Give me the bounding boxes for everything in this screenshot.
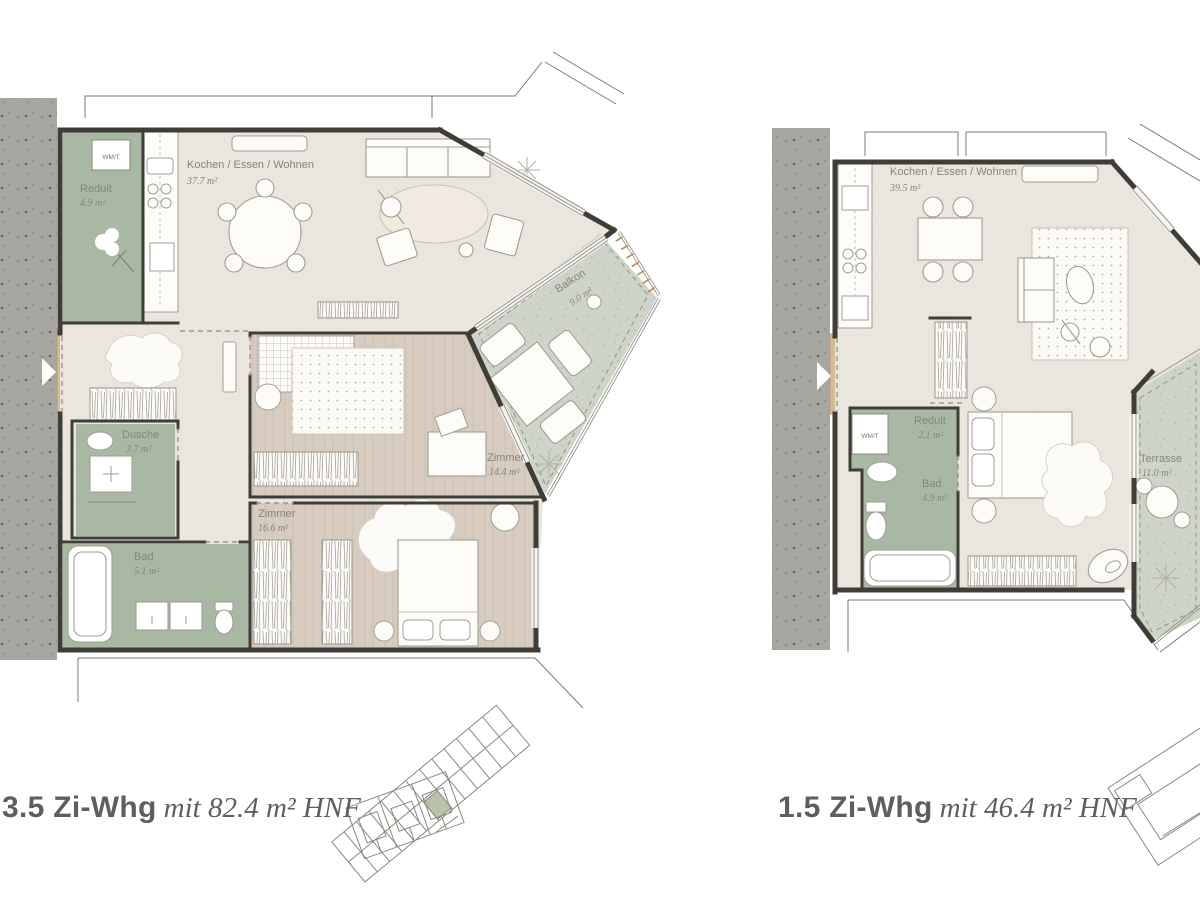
toilet [866,512,886,540]
kitchen-oven [150,243,174,271]
neighbour-outline-bottom [78,658,583,708]
wardrobe [322,540,352,644]
entry-wardrobe [90,388,176,422]
key-plan-connector [436,816,458,832]
stool [972,499,996,523]
left-plan-title-italic: mit 82.4 m² HNF [164,792,361,824]
room-area-zimmer2: 16.6 m² [258,523,289,534]
toilet-tank [866,502,886,512]
entry-wardrobe [935,322,967,398]
desk [428,432,486,476]
pillow [403,620,433,640]
floorplan-canvas: Reduit 4.9 m² WM/T Kochen / Essen / Wohn… [0,0,1200,900]
floor-lamp [381,197,401,217]
room-area-terrasse: 11.0 m² [1142,468,1172,479]
room-label-terrasse: Terrasse [1140,453,1182,465]
terrace-chair [1174,512,1190,528]
kitchen-counter [838,164,872,328]
room-label-kochen: Kochen / Essen / Wohnen [890,166,1017,178]
left-plan-title: 3.5 Zi-Whgmit 82.4 m² HNF [2,791,361,825]
toilet [215,610,233,634]
right-plan-title-bold: 1.5 Zi-Whg [778,791,933,824]
room-area-reduit: 4.9 m² [80,198,106,209]
washbasin [867,462,897,482]
pillow [440,620,470,640]
room-area-bad: 4.9 m² [922,493,948,504]
wmt-label: WM/T [102,154,119,161]
sideboard-shelf [232,136,307,151]
bathtub [68,546,112,642]
key-plan-main-wing [332,705,530,882]
terrace-plant [1152,564,1180,592]
right-plan-title: 1.5 Zi-Whgmit 46.4 m² HNF [778,791,1137,825]
balcony-plant [535,450,563,478]
room-label-dusche: Dusche [122,429,159,441]
pillow [972,418,994,450]
console [223,342,236,392]
room-area-bad: 5.1 m² [134,566,160,577]
room-area-kochen: 37.7 m² [186,176,218,187]
wardrobe [254,452,358,486]
room-label-reduit: Reduit [80,183,112,195]
pillow [972,454,994,486]
room-area-kochen: 39.5 m² [889,183,921,194]
dotted-rug [292,348,404,434]
left-plan-title-bold: 3.5 Zi-Whg [2,791,157,824]
right-plan-title-italic: mit 46.4 m² HNF [940,792,1137,824]
room-area-dusche: 3.7 m² [125,444,152,455]
floorplan-sheet: Reduit 4.9 m² WM/T Kochen / Essen / Wohn… [0,0,1200,900]
pouf [1090,337,1110,357]
washbasin [87,432,113,450]
room-area-zimmer1: 14.4 m² [489,467,520,478]
kitchen-sink [842,186,868,210]
sideboard-hatched [318,302,398,318]
room-area-reduit: 2.1 m² [918,430,944,441]
sideboard-shelf [1022,166,1098,182]
room-label-kochen: Kochen / Essen / Wohnen [187,159,314,171]
side-table [459,243,473,257]
terrace [1134,349,1200,644]
key-plan-highlighted-unit [424,791,452,819]
dining-table [918,218,982,260]
right-floor-plan: Kochen / Essen / Wohnen 39.5 m² WM/T Red… [772,124,1200,652]
stool [480,621,500,641]
stool [491,503,519,531]
stool [255,384,281,410]
sofa [366,139,490,177]
wardrobe [253,540,291,644]
key-plan-left [332,705,530,882]
key-plan-right [1108,706,1200,865]
kitchen-cabinet [842,296,868,320]
stool [972,387,996,411]
neighbour-outline-top [85,52,624,118]
room-label-bad: Bad [134,551,154,563]
kitchen-counter [143,130,178,312]
room-label-bad: Bad [922,478,942,490]
room-label-zimmer2: Zimmer [258,508,296,520]
kitchen-sink [147,158,173,174]
room-label-reduit: Reduit [914,415,946,427]
terrace-chair [1136,478,1152,494]
wmt-label: WM/T [861,433,878,440]
left-floor-plan: Reduit 4.9 m² WM/T Kochen / Essen / Wohn… [0,52,660,708]
wardrobe [968,556,1076,586]
concrete-wall-strip [772,128,830,650]
stool [374,621,394,641]
room-label-zimmer1: Zimmer [487,452,525,464]
